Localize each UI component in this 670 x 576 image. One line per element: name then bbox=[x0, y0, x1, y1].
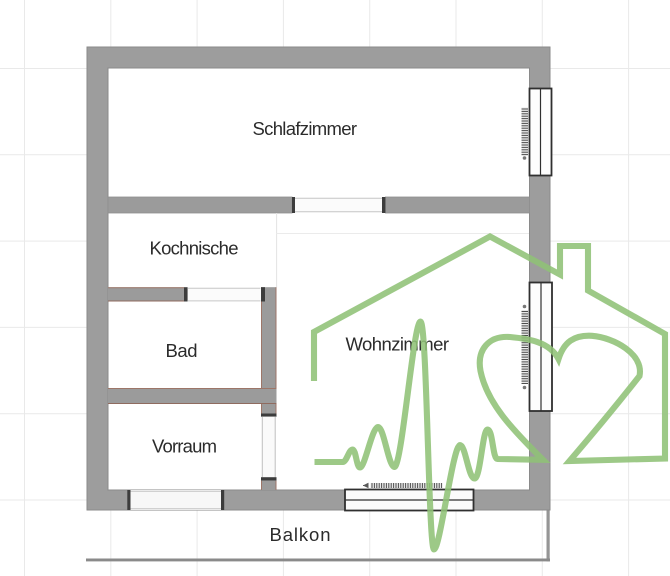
svg-text:Balkon: Balkon bbox=[270, 524, 331, 545]
svg-text:Vorraum: Vorraum bbox=[152, 435, 217, 456]
svg-text:Wohnzimmer: Wohnzimmer bbox=[346, 333, 450, 354]
svg-text:Bad: Bad bbox=[166, 340, 198, 361]
svg-text:Schlafzimmer: Schlafzimmer bbox=[253, 118, 358, 139]
svg-text:Kochnische: Kochnische bbox=[150, 238, 239, 259]
